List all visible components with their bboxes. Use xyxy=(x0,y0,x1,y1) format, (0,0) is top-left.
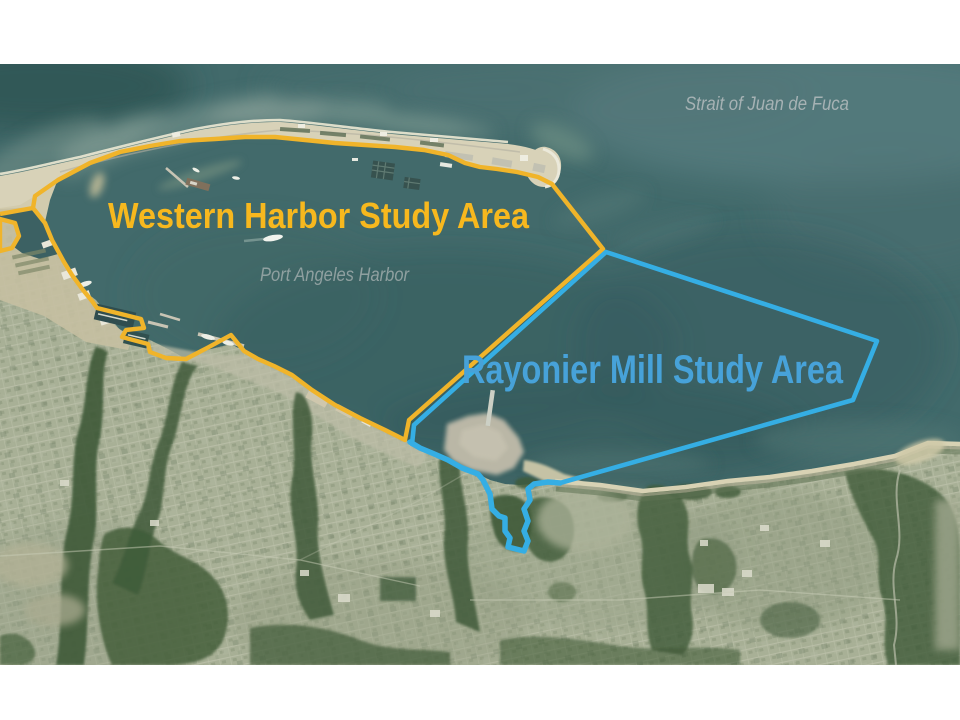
svg-text:Port Angeles Harbor: Port Angeles Harbor xyxy=(260,265,410,286)
svg-text:Strait of Juan de Fuca: Strait of Juan de Fuca xyxy=(685,94,849,115)
svg-text:Western Harbor Study Area: Western Harbor Study Area xyxy=(108,195,530,236)
svg-text:Rayonier Mill Study Area: Rayonier Mill Study Area xyxy=(462,348,844,392)
